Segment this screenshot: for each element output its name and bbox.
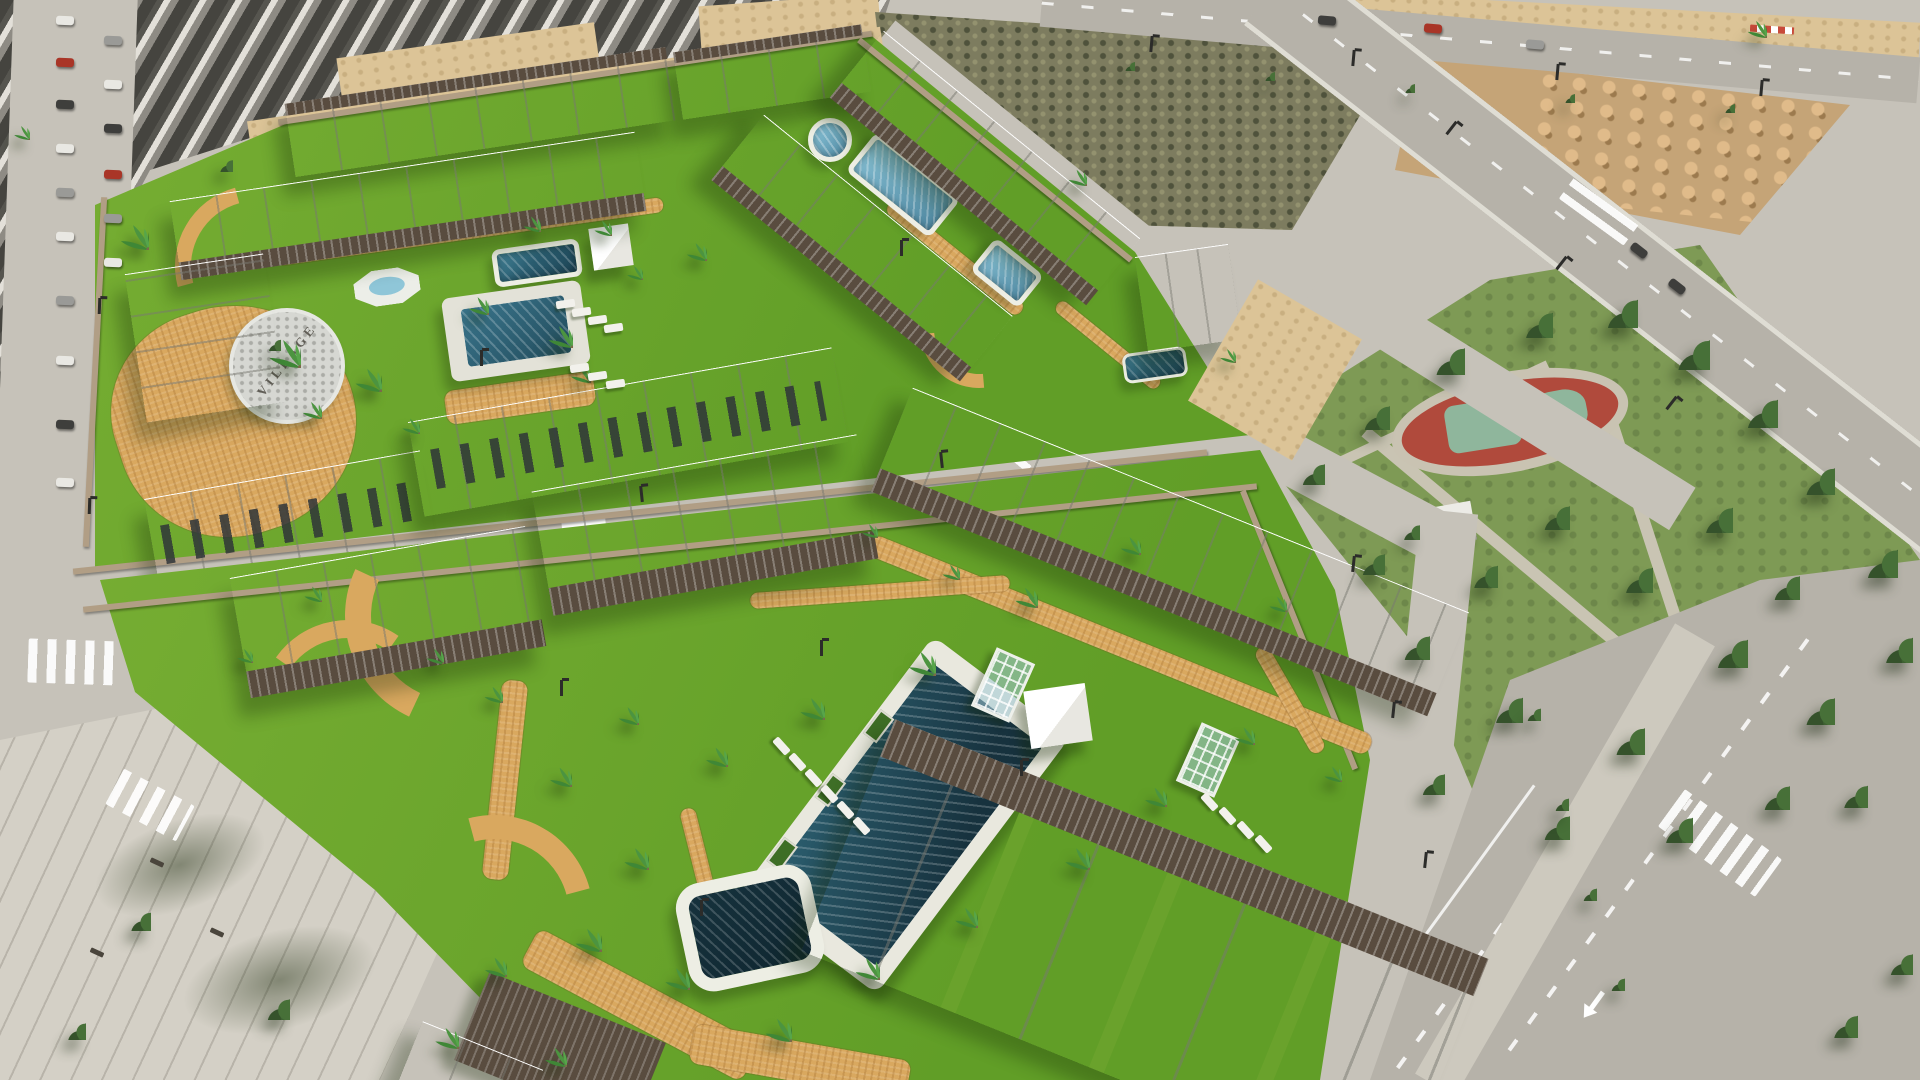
palm-tree — [457, 927, 507, 977]
park-tree — [1793, 733, 1868, 808]
street-lamp — [98, 298, 102, 314]
park-tree — [1545, 73, 1575, 103]
street-lamp — [820, 640, 823, 656]
park-tree — [1583, 949, 1625, 991]
park-tree — [220, 950, 290, 1020]
park-tree — [1527, 769, 1569, 811]
parked-car — [56, 356, 74, 366]
park-tree — [193, 132, 233, 172]
parked-car — [56, 16, 74, 26]
palm-tree — [1095, 509, 1141, 555]
palm-tree — [1723, 0, 1767, 38]
palm-tree — [1302, 742, 1342, 782]
parked-car — [104, 36, 122, 46]
palm-tree — [593, 814, 649, 870]
street-lamp — [1020, 760, 1023, 776]
parked-car — [56, 100, 74, 110]
palm-tree — [1200, 327, 1236, 363]
street-lamp — [480, 350, 483, 366]
street-lamp — [88, 498, 92, 514]
palm-tree — [542, 892, 602, 952]
park-tree — [1710, 730, 1790, 810]
park-tree — [1608, 758, 1693, 843]
palm-tree — [1045, 144, 1087, 186]
park-tree — [1499, 679, 1541, 721]
park-tree — [1568, 508, 1653, 593]
palm-tree — [593, 679, 639, 725]
park-tree — [243, 313, 281, 351]
parked-car — [104, 80, 122, 90]
park-tree — [30, 984, 86, 1040]
palm-tree — [517, 1017, 567, 1067]
park-tree — [1105, 41, 1135, 71]
palm-tree — [1117, 757, 1167, 807]
palm-tree — [322, 332, 382, 392]
street-lamp — [560, 680, 563, 696]
palm-tree — [443, 269, 489, 315]
park-tree — [1490, 450, 1570, 530]
street-lamp — [1391, 702, 1396, 718]
park-tree — [1555, 859, 1597, 901]
park-tree — [1745, 635, 1835, 725]
palm-tree — [217, 627, 253, 663]
palm-tree — [522, 737, 572, 787]
parked-car — [104, 214, 122, 224]
park-tree — [1783, 963, 1858, 1038]
crosswalk — [27, 638, 120, 685]
park-tree — [89, 869, 151, 931]
palm-tree — [986, 556, 1038, 608]
palm-tree — [661, 215, 707, 261]
parked-car — [104, 170, 122, 180]
park-tree — [1423, 513, 1498, 588]
park-tree — [1385, 63, 1415, 93]
palm-tree — [282, 562, 322, 602]
palm-tree — [732, 982, 792, 1042]
park-tree — [1370, 490, 1420, 540]
palm-tree — [278, 375, 322, 419]
palm-tree — [920, 540, 960, 580]
aerial-render: VILLAGE — [0, 0, 1920, 1080]
garden-strip — [1237, 932, 1331, 1080]
park-tree — [1745, 405, 1835, 495]
palm-tree — [404, 624, 444, 664]
park-tree — [1803, 483, 1898, 578]
palm-tree — [874, 614, 936, 676]
palm-tree — [842, 502, 878, 538]
palm-tree — [769, 664, 825, 720]
palm-tree — [545, 337, 591, 383]
palm-tree — [926, 876, 978, 928]
park-tree — [1375, 285, 1465, 375]
fountain-water — [368, 275, 406, 298]
palm-tree — [607, 244, 643, 280]
park-tree — [1245, 51, 1275, 81]
palm-tree — [380, 394, 420, 434]
palm-tree — [572, 196, 612, 236]
street-lamp — [700, 900, 703, 916]
palm-tree — [501, 192, 541, 232]
parked-car — [56, 420, 74, 430]
palm-tree — [461, 661, 503, 703]
parked-car — [56, 58, 74, 68]
park-tree — [1375, 725, 1445, 795]
palm-tree — [1034, 814, 1090, 870]
parked-car — [104, 124, 122, 134]
palm-tree — [824, 924, 880, 980]
palm-tree — [0, 104, 30, 140]
parked-car — [1424, 23, 1443, 34]
parked-car — [56, 144, 74, 154]
parked-car — [56, 478, 74, 488]
park-tree — [1720, 520, 1800, 600]
park-tree — [1350, 580, 1430, 660]
park-tree — [1705, 83, 1735, 113]
garden-strip — [1089, 872, 1183, 1073]
pool-shed — [1023, 683, 1092, 749]
palm-tree — [634, 934, 690, 990]
parked-car — [56, 232, 74, 242]
palm-tree — [405, 995, 459, 1049]
parked-car — [104, 258, 122, 268]
parked-car — [56, 188, 74, 198]
palm-tree — [1209, 699, 1255, 745]
palm-tree — [678, 717, 728, 767]
parked-car — [1526, 39, 1545, 50]
palm-tree — [1247, 572, 1287, 612]
park-tree — [1828, 578, 1913, 663]
street-lamp — [900, 240, 903, 256]
parked-car — [56, 296, 74, 306]
park-tree — [1468, 253, 1553, 338]
parked-car — [1318, 15, 1337, 26]
park-tree — [1555, 665, 1645, 755]
